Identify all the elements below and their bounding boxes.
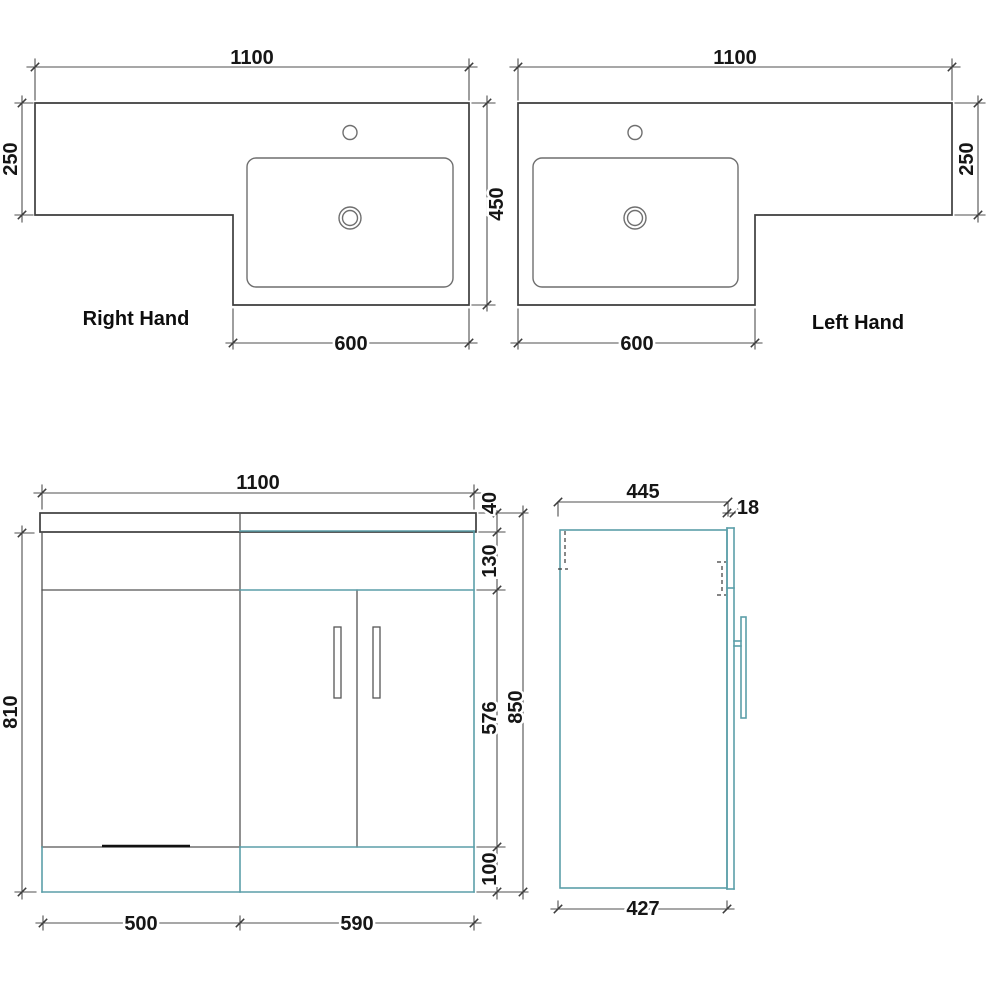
dim-label-right-section: 590: [340, 913, 373, 935]
dim-right-depth-250: 250: [955, 96, 985, 222]
dim-label: 810: [0, 695, 22, 728]
dim-label-plinth: 100: [479, 852, 501, 885]
dim-depth-445: 445: [554, 481, 732, 516]
plan-title-left-hand: Left Hand: [812, 312, 904, 334]
dim-height-810: 810: [0, 526, 36, 899]
dim-label: 1100: [236, 472, 279, 494]
front-elevation: 1100: [0, 472, 528, 935]
dim-label: 250: [0, 142, 22, 175]
dim-label: 1100: [713, 47, 756, 69]
countertop-outline: [518, 103, 952, 305]
dim-width-1100: 1100: [34, 472, 482, 509]
countertop-outline: [35, 103, 469, 305]
dim-label: 450: [486, 187, 508, 220]
dim-label: 600: [334, 333, 367, 355]
dim-label: 850: [505, 690, 527, 723]
plan-right-hand: 1100 250 450 600 Right Hand: [0, 47, 508, 355]
carcass-lines-grey: [42, 532, 357, 847]
dim-basin-width-600: 600: [511, 309, 762, 355]
vanity-dimension-drawing: 1100 250 450 600 Right Hand: [0, 0, 1001, 1001]
side-door-handle: [734, 617, 746, 718]
dim-carcass-depth-427: 427: [551, 898, 734, 920]
dim-basin-width-600: 600: [226, 309, 477, 355]
dim-width-1100: 1100: [27, 47, 477, 100]
door-handle-right: [373, 627, 380, 698]
dim-label: 1100: [230, 47, 273, 69]
dim-label: 18: [737, 497, 759, 519]
dim-label: 600: [620, 333, 653, 355]
dim-left-depth-250: 250: [0, 96, 33, 222]
plan-title-right-hand: Right Hand: [83, 308, 190, 330]
dim-label: 445: [626, 481, 659, 503]
dim-label: 427: [626, 898, 659, 920]
side-carcass-outline: [560, 530, 727, 888]
dim-width-1100: 1100: [510, 47, 960, 100]
door-handle-left: [334, 627, 341, 698]
dim-height-850: 850: [505, 506, 527, 899]
dim-label-doors: 576: [479, 701, 501, 734]
worktop-front: [40, 513, 476, 532]
side-elevation: 445 18: [551, 481, 759, 920]
dim-label: 250: [956, 142, 978, 175]
carcass-lines-teal: [42, 531, 474, 892]
dim-basin-depth-450: 450: [472, 96, 508, 311]
side-door-panel: [727, 528, 734, 889]
plan-left-hand: 1100 250 600 Left Hand: [510, 47, 985, 355]
technical-drawing-page: 1100 250 450 600 Right Hand: [0, 0, 1001, 1001]
dim-label-left-section: 500: [124, 913, 157, 935]
dim-label-worktop: 40: [479, 492, 501, 514]
dim-label-upper: 130: [479, 544, 501, 577]
dim-bottom-sections: 500 590: [36, 913, 481, 935]
